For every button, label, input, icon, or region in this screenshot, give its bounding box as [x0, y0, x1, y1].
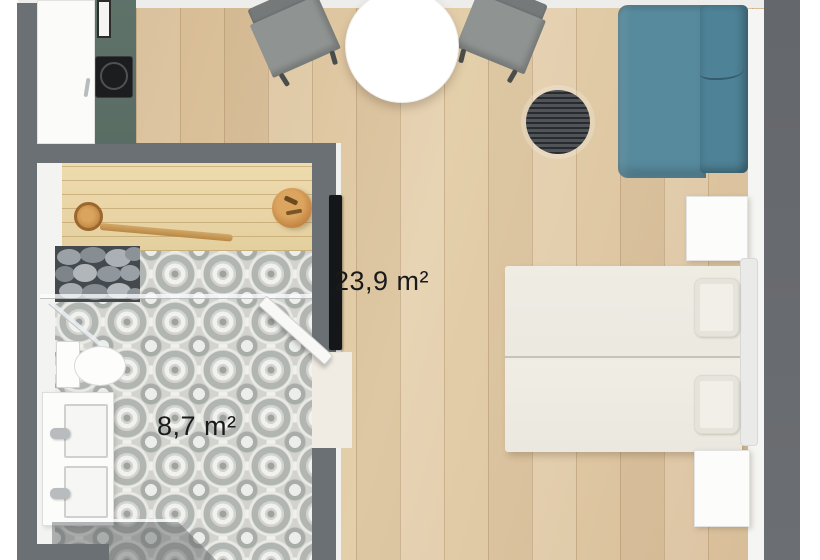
chair-leg: [458, 49, 466, 64]
sofa-backrest: [700, 5, 748, 173]
tall-cabinet: [37, 0, 95, 144]
sofa-seat: [618, 5, 706, 178]
chair-leg: [507, 69, 518, 84]
sink-basin: [64, 466, 108, 518]
bathroom-right-wall-lower: [312, 448, 341, 560]
sauna-ladle-head: [74, 202, 103, 231]
sauna-bucket: [272, 188, 312, 228]
nightstand-lower: [694, 450, 750, 527]
faucet: [50, 428, 70, 439]
glass-partition: [40, 294, 312, 299]
faucet: [50, 488, 70, 499]
nightstand-upper: [686, 196, 748, 261]
round-dark-rug: [526, 90, 590, 154]
headboard: [740, 258, 758, 446]
toilet-bowl: [74, 346, 126, 386]
living-room-area-label: 23,9 m²: [334, 266, 429, 297]
cooktop-burner: [100, 62, 128, 90]
floor-plan: 23,9 m² 8,7 m²: [0, 0, 820, 560]
bathroom-area-label: 8,7 m²: [157, 411, 237, 442]
bottom-wall: [17, 544, 109, 560]
pillow-left: [694, 278, 739, 337]
right-wall: [764, 0, 800, 560]
left-wall: [17, 3, 37, 560]
chair-leg: [279, 72, 291, 87]
bathroom-top-wall: [18, 143, 336, 163]
kitchen-sink: [97, 0, 111, 38]
door-threshold: [312, 352, 352, 448]
chair-leg: [329, 50, 338, 65]
mattress-seam: [505, 356, 742, 358]
shower-glass-edge: [52, 519, 178, 522]
pillow-right: [694, 375, 739, 434]
sink-basin: [64, 404, 108, 458]
